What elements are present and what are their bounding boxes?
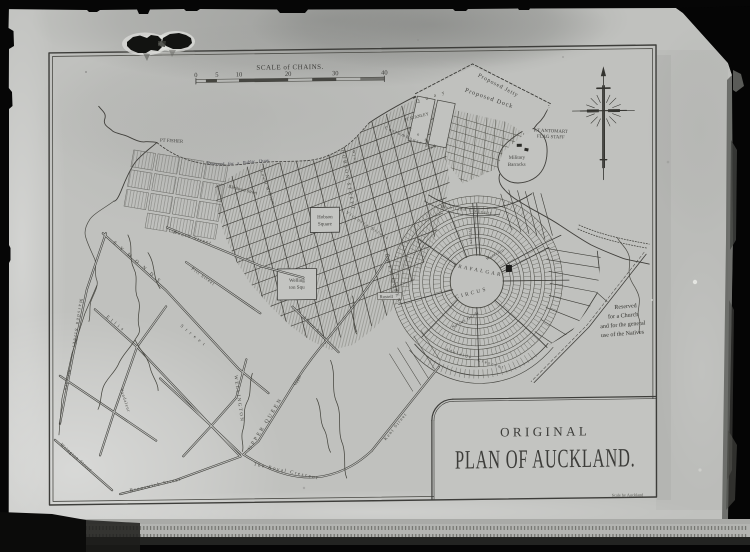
svg-text:ORIGINAL: ORIGINAL [500,423,590,439]
svg-text:Square: Square [318,222,333,227]
svg-text:Barracks: Barracks [508,163,526,168]
svg-text:40: 40 [381,70,388,77]
svg-text:Russell: Russell [380,294,394,299]
svg-text:Military: Military [509,156,526,161]
svg-text:Scale by Auckland: Scale by Auckland [612,492,644,497]
svg-text:Welling: Welling [289,279,305,284]
svg-text:0: 0 [194,72,197,79]
svg-text:ton Squ: ton Squ [289,286,305,291]
svg-text:30: 30 [332,70,339,77]
svg-text:20: 20 [285,71,292,78]
svg-text:5: 5 [215,72,218,79]
svg-text:PLAN OF AUCKLAND.: PLAN OF AUCKLAND. [455,442,636,474]
svg-text:10: 10 [236,71,243,78]
svg-text:Hobson: Hobson [317,215,333,220]
